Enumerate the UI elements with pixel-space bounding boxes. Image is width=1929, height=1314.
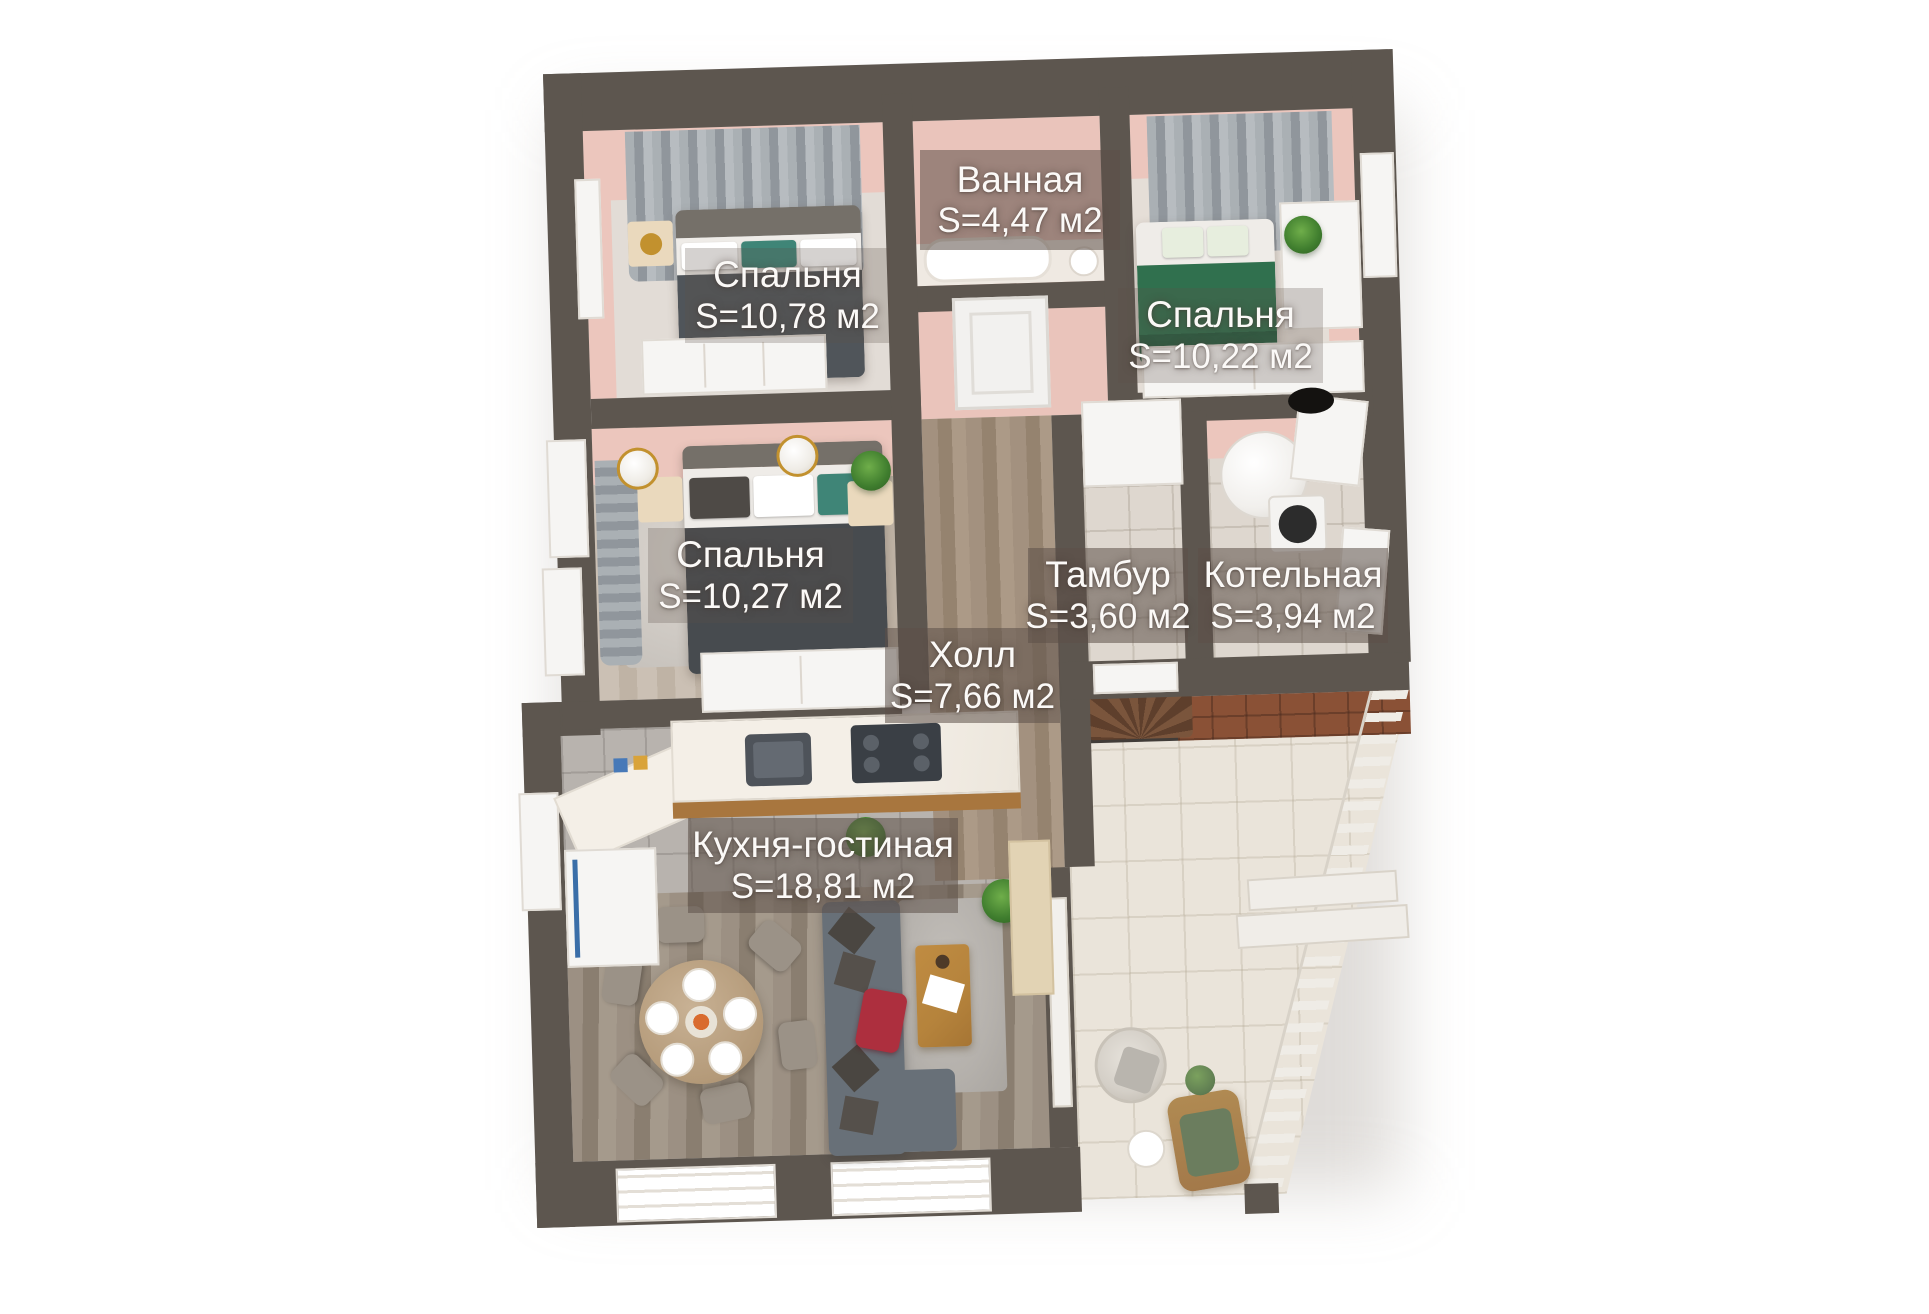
room-name: Спальня bbox=[676, 534, 825, 577]
room-area: S=3,94 м2 bbox=[1210, 597, 1375, 637]
room-area: S=10,78 м2 bbox=[695, 297, 880, 337]
room-area: S=10,27 м2 bbox=[658, 577, 843, 617]
room-area: S=18,81 м2 bbox=[731, 867, 916, 907]
room-name: Тамбур bbox=[1045, 554, 1171, 597]
room-name: Кухня-гостиная bbox=[692, 824, 954, 867]
label-hall: Холл S=7,66 м2 bbox=[885, 628, 1060, 723]
label-boiler-room: Котельная S=3,94 м2 bbox=[1198, 548, 1388, 643]
label-bedroom-top-right: Спальня S=10,22 м2 bbox=[1118, 288, 1323, 383]
room-name: Котельная bbox=[1203, 554, 1382, 597]
label-kitchen-living: Кухня-гостиная S=18,81 м2 bbox=[688, 818, 958, 913]
room-area: S=7,66 м2 bbox=[890, 677, 1055, 717]
room-name: Ванная bbox=[957, 159, 1084, 202]
room-labels: Ванная S=4,47 м2 Спальня S=10,78 м2 Спал… bbox=[0, 0, 1929, 1286]
label-bathroom: Ванная S=4,47 м2 bbox=[920, 150, 1120, 250]
room-name: Спальня bbox=[713, 254, 862, 297]
room-name: Холл bbox=[929, 634, 1016, 677]
room-area: S=4,47 м2 bbox=[937, 201, 1102, 241]
room-name: Спальня bbox=[1146, 294, 1295, 337]
room-area: S=10,22 м2 bbox=[1128, 337, 1313, 377]
label-bedroom-top-left: Спальня S=10,78 м2 bbox=[685, 248, 890, 343]
label-bedroom-mid-left: Спальня S=10,27 м2 bbox=[648, 528, 853, 623]
floor-plan-render: Ванная S=4,47 м2 Спальня S=10,78 м2 Спал… bbox=[0, 0, 1929, 1286]
